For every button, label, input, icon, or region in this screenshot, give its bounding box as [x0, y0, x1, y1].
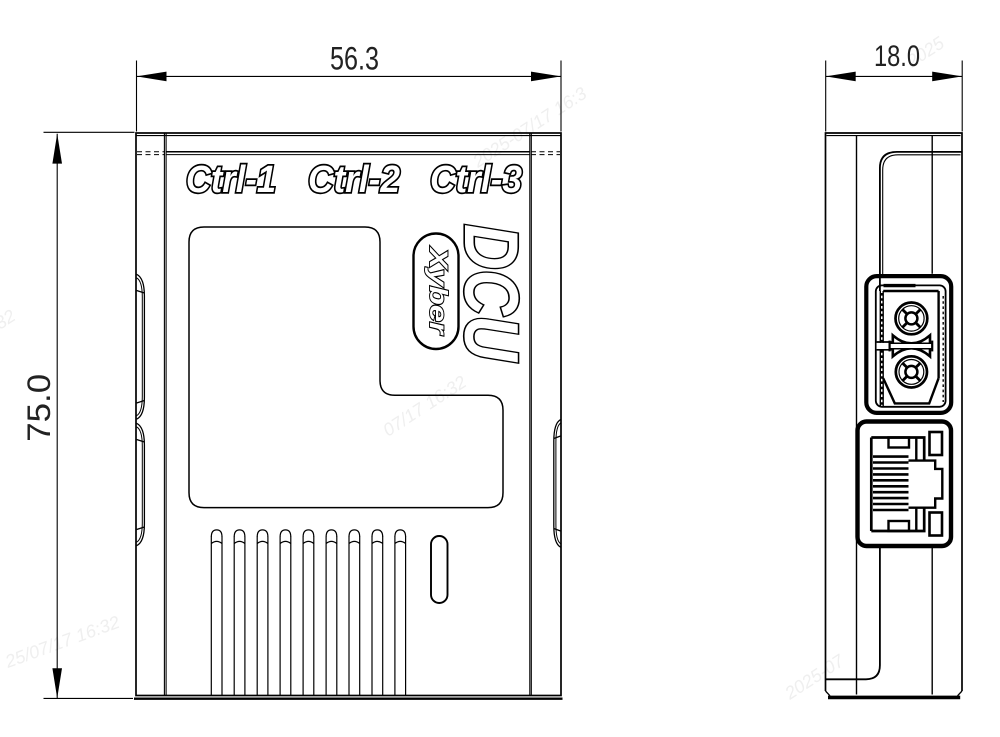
svg-text:DCU: DCU [448, 224, 533, 363]
svg-text:56.3: 56.3 [330, 41, 379, 77]
svg-text:Ctrl-2: Ctrl-2 [308, 159, 400, 201]
svg-text:Xyber: Xyber [424, 246, 452, 336]
svg-text:75.0: 75.0 [21, 374, 57, 442]
svg-text:Ctrl-1: Ctrl-1 [186, 159, 276, 201]
svg-text:Ctrl-3: Ctrl-3 [430, 159, 522, 201]
svg-text:18.0: 18.0 [874, 40, 920, 73]
